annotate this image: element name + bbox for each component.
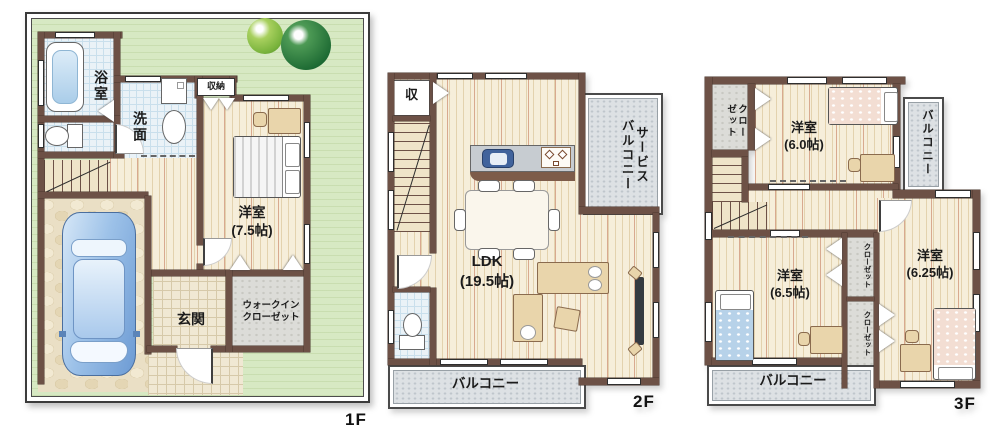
dining-table-icon [465, 190, 549, 250]
window [38, 124, 44, 148]
window [388, 190, 394, 230]
wall [579, 73, 585, 213]
sofa-icon [513, 294, 543, 342]
wall [842, 233, 847, 388]
toilet-icon [403, 313, 422, 337]
bedroom-c-label: 洋室 (6.25帖) [886, 248, 974, 282]
window [705, 212, 712, 240]
sofa-icon [537, 262, 609, 294]
bed-icon [233, 136, 301, 198]
wall [847, 297, 874, 301]
opening-dashed-line [770, 180, 846, 182]
wall [748, 84, 755, 150]
window [900, 381, 955, 388]
stove-icon [541, 147, 571, 168]
window [607, 378, 641, 385]
ldk-label: LDK (19.5帖) [437, 252, 537, 291]
floor-plan-3f: クロー ゼット 洋室 (6.0帖) バルコニー 洋室 (6.5帖) クローゼット… [702, 72, 1000, 430]
bath-label: 浴室 [87, 58, 109, 114]
closet-lower-label: クローゼット [850, 305, 871, 362]
tv-icon [635, 277, 644, 345]
toilet-icon [67, 124, 83, 148]
closet-folding-door-icon [230, 255, 250, 270]
balcony-east-label: バルコニー [911, 108, 933, 178]
window [55, 32, 95, 38]
wall [147, 346, 177, 352]
closet-folding-door-icon [879, 304, 895, 326]
desk-icon [268, 108, 301, 134]
floor-label-2f: 2F [633, 392, 655, 412]
bedroom-label: 洋室 (7.5帖) [202, 204, 302, 239]
window [768, 184, 810, 190]
walk-in-closet-label: ウォークイン クローゼット [231, 300, 311, 325]
storage-label: 収納 [197, 81, 235, 93]
desk-icon [810, 326, 843, 354]
toilet-icon [399, 335, 425, 350]
hall-floor [748, 190, 898, 230]
chair-icon [848, 158, 861, 172]
desk-icon [900, 344, 931, 372]
storage-folding-door-icon [219, 98, 235, 110]
floor-plan-sheet: 浴室 洗面 収納 洋室 (7.5帖) 玄関 ウォークイン クローゼット 1F [0, 0, 1000, 442]
window [973, 232, 980, 270]
chair-icon [548, 209, 560, 231]
bedroom-b-label: 洋室 (6.5帖) [744, 268, 836, 302]
chair-icon [513, 180, 535, 192]
wall [430, 288, 436, 365]
opening-dashed-line [141, 155, 195, 157]
kitchen-sink-icon [482, 149, 514, 168]
entrance-label: 玄関 [161, 310, 221, 328]
window [842, 77, 887, 84]
side-table-icon [553, 306, 580, 332]
storage-label: 収 [395, 87, 428, 104]
window [485, 73, 527, 79]
window [38, 60, 44, 106]
window [440, 359, 488, 365]
stairs [712, 157, 742, 202]
tree-icon [281, 20, 331, 70]
window [304, 224, 310, 264]
car-icon [62, 212, 136, 376]
wall [393, 116, 430, 121]
desk-icon [860, 154, 895, 182]
tree-icon [247, 18, 283, 54]
window [125, 76, 161, 82]
wall [145, 196, 151, 354]
window [500, 359, 548, 365]
closet-folding-door-icon [755, 88, 771, 110]
opening-dashed-line [728, 236, 808, 238]
floor-plan-1f: 浴室 洗面 収納 洋室 (7.5帖) 玄関 ウォークイン クローゼット 1F [25, 12, 377, 440]
chair-icon [253, 112, 267, 127]
window [787, 77, 827, 84]
wall [742, 157, 748, 202]
window [388, 132, 394, 172]
chair-icon [905, 330, 919, 343]
washing-machine-icon [161, 78, 187, 104]
service-balcony-label: サービス バルコニー [596, 112, 648, 198]
floor-label-3f: 3F [954, 394, 976, 414]
window [653, 232, 659, 268]
storage-folding-door-icon [433, 82, 449, 104]
bathtub-icon [46, 42, 84, 112]
balcony-label: バルコニー [443, 375, 528, 393]
toilet-icon [45, 126, 69, 146]
window [752, 358, 797, 365]
balcony-south-label: バルコニー [748, 372, 838, 390]
chair-icon [478, 180, 500, 192]
window [304, 122, 310, 158]
window [437, 73, 473, 79]
chair-icon [798, 332, 810, 346]
washroom-label: 洗面 [126, 100, 148, 154]
wall [38, 192, 148, 198]
floor-plan-2f: 収 サービス バルコニー LDK (19.5帖) バルコニー 2F [385, 70, 680, 430]
wall [38, 152, 120, 158]
closet-folding-door-icon [879, 330, 895, 352]
storage-folding-door-icon [203, 98, 219, 110]
window [705, 302, 712, 342]
window [653, 302, 659, 338]
washbasin-icon [162, 110, 186, 144]
bed-icon [933, 308, 976, 380]
closet-upper-label: クローゼット [850, 237, 871, 294]
floor-label-1f: 1F [345, 410, 367, 430]
window [243, 95, 289, 101]
window [388, 310, 394, 344]
window [935, 190, 971, 198]
closet-label: クロー ゼット [715, 94, 746, 148]
chair-icon [454, 209, 466, 231]
closet-folding-door-icon [826, 238, 842, 260]
bedroom-a-label: 洋室 (6.0帖) [760, 120, 848, 154]
wall [579, 207, 659, 214]
wall [712, 150, 748, 157]
closet-folding-door-icon [283, 255, 303, 270]
